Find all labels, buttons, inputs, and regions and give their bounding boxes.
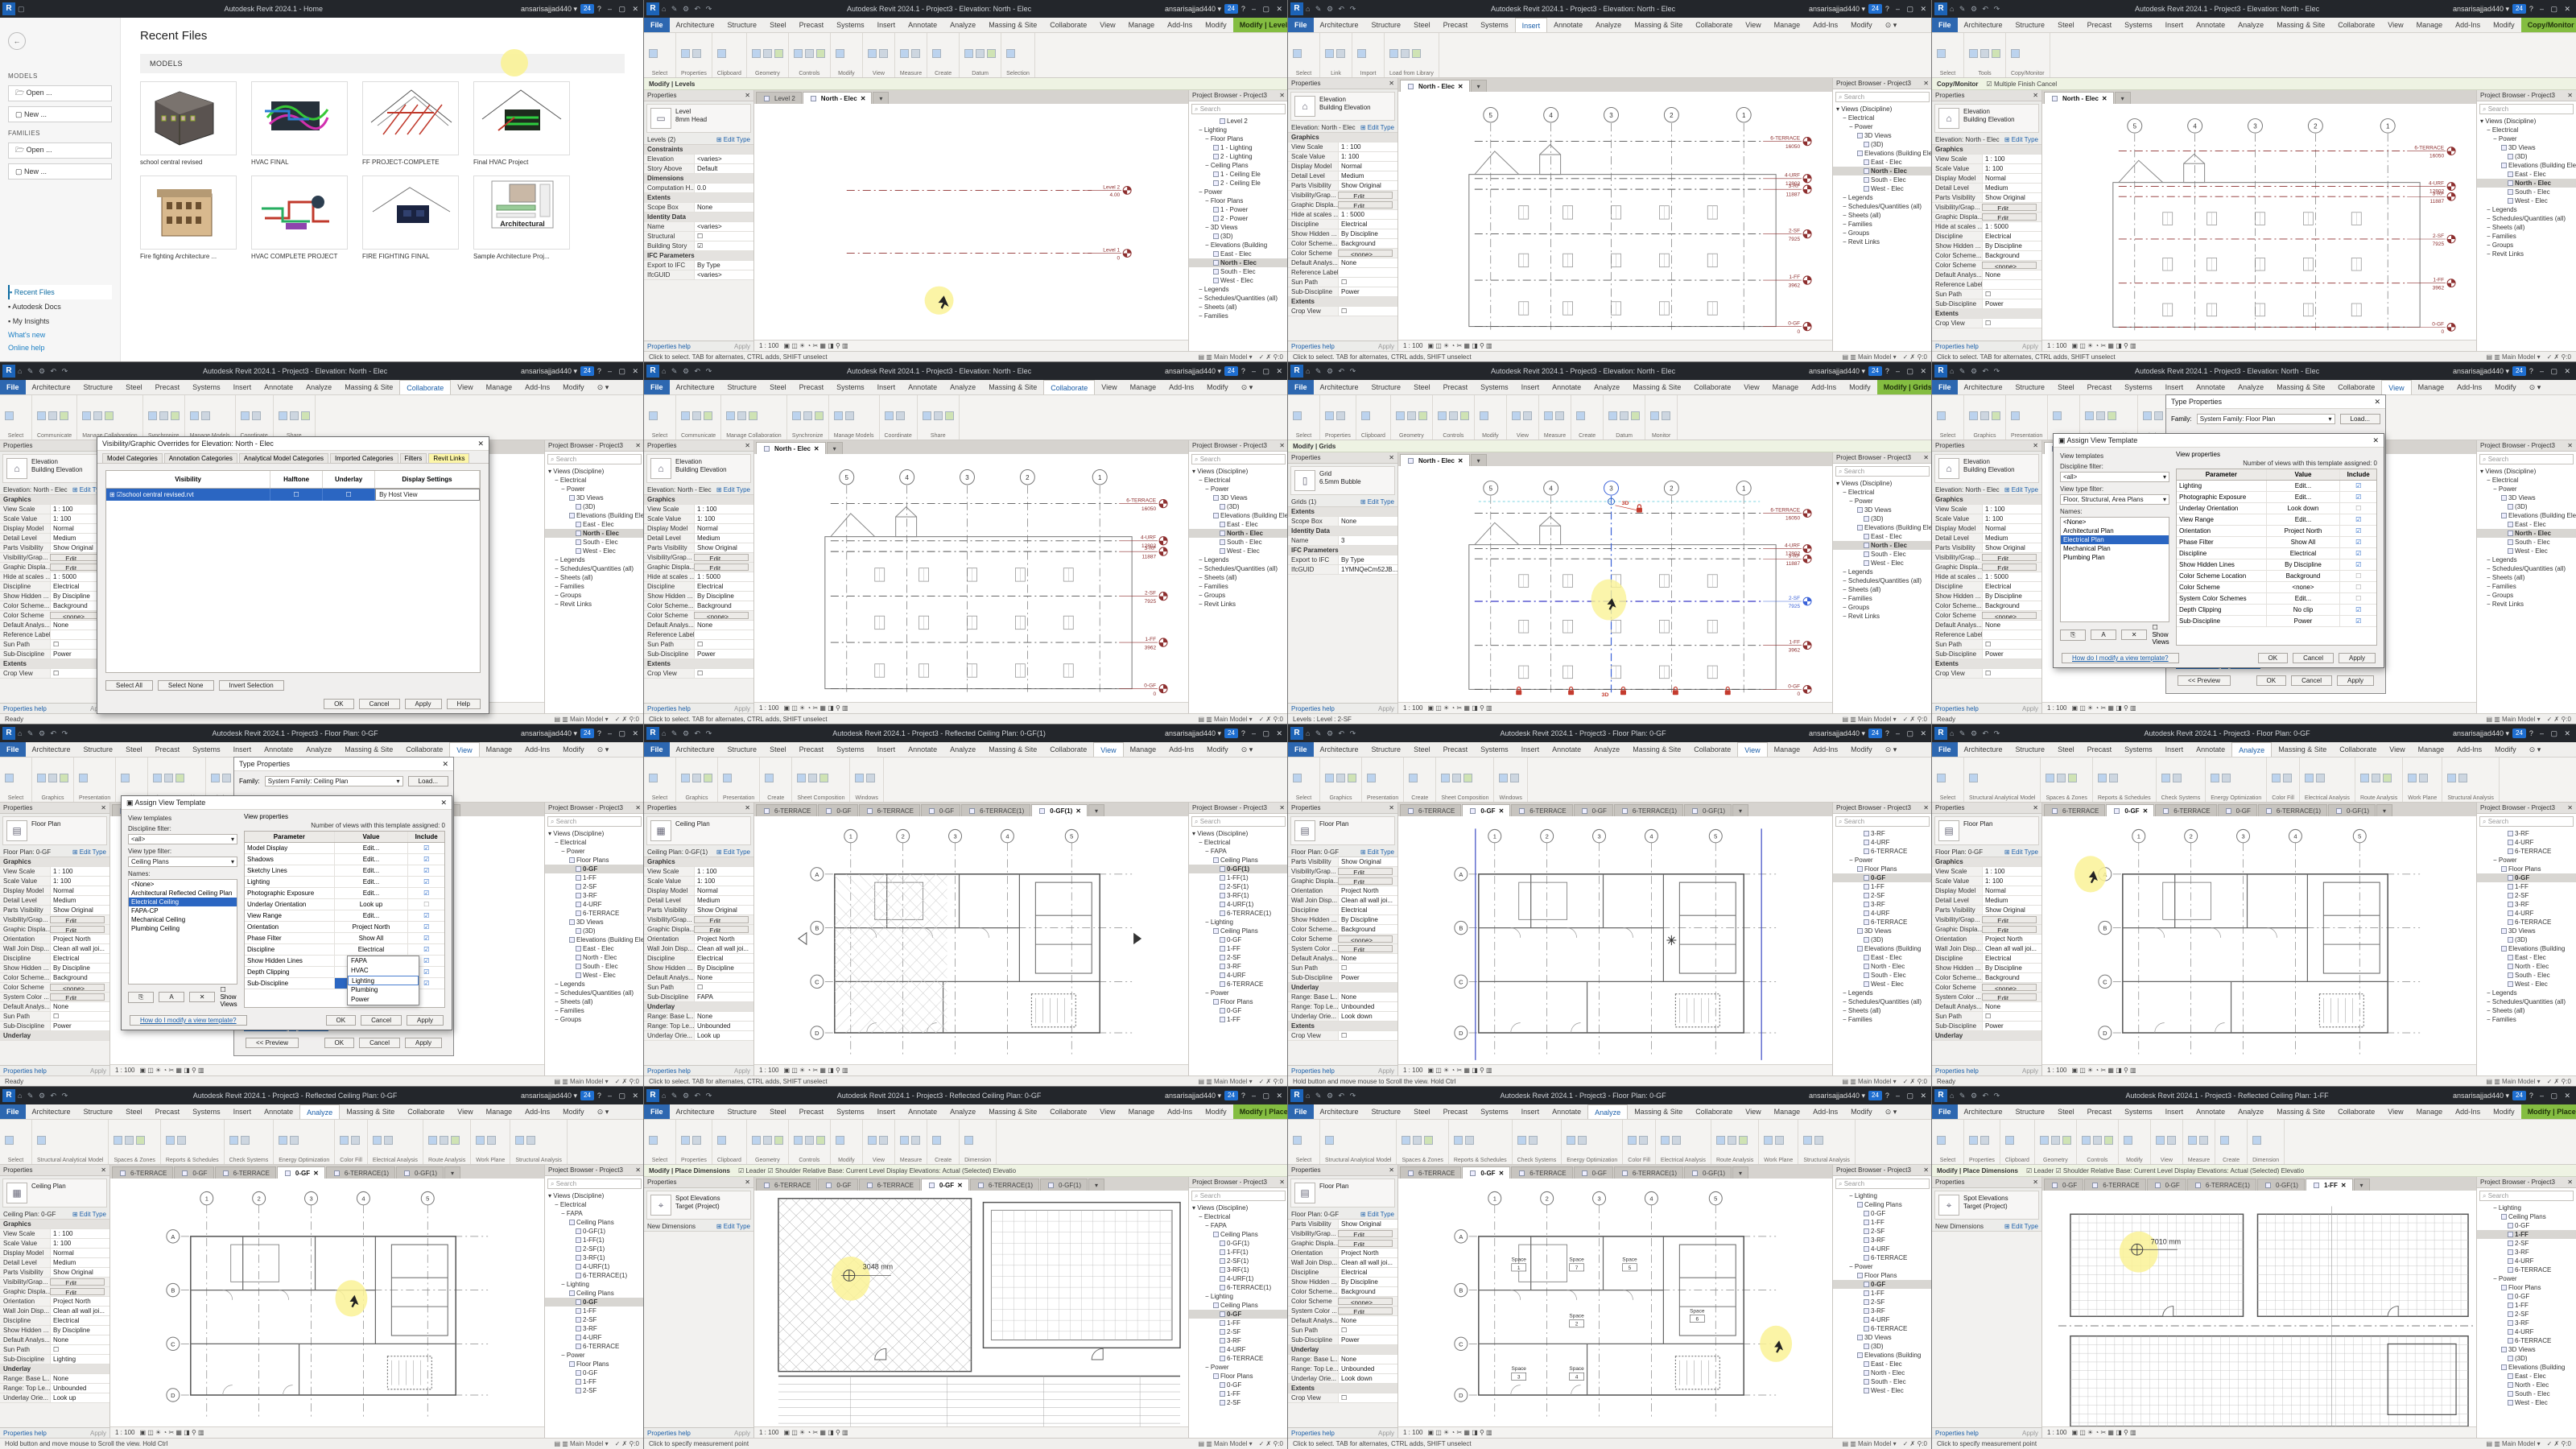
browser-search-input[interactable]: ⌕ Search [1835,1179,1930,1189]
ribbon-tab-collaborate[interactable]: Collaborate [1687,380,1737,394]
tool-icon[interactable] [1555,411,1564,420]
tool-icon[interactable] [885,411,894,420]
window-controls[interactable]: – ▢ ✕ [2540,5,2573,14]
nav-item-recent-files[interactable]: ▪ Recent Files [8,285,112,299]
document-tab[interactable]: 0-GF [818,1179,857,1191]
assign-view-template-dialog[interactable]: ▣ Assign View Template✕View templatesDis… [2053,433,2384,668]
quick-access-toolbar[interactable]: ⌂ ✎ ⚙ ↶ ↷ [1950,367,2001,376]
tree-item[interactable]: Ceiling Plans [1189,1230,1288,1239]
tool-icon[interactable] [2220,1136,2229,1145]
browser-search-input[interactable]: ⌕ Search [2479,104,2574,114]
scale-indicator[interactable]: 1 : 100 [115,1067,134,1074]
tree-item[interactable]: 3D Views [1833,506,1932,514]
ribbon-tab-insert[interactable]: Insert [1515,1104,1546,1119]
window-controls[interactable]: – ▢ ✕ [608,5,641,14]
ribbon-tab-structure[interactable]: Structure [2009,742,2052,757]
button-cancel[interactable]: Cancel [361,1015,402,1026]
ribbon-tab-modify[interactable]: Modify [1843,380,1877,394]
tree-item[interactable]: − Legends [1833,568,1932,576]
ribbon-tab-systems[interactable]: Systems [186,742,227,757]
ribbon-tab-annotate[interactable]: Annotate [902,1104,943,1119]
tree-item[interactable]: − Power [1833,856,1932,865]
button-invert-selection[interactable]: Invert Selection [219,680,284,691]
tree-item[interactable]: East - Elec [2477,170,2576,179]
drawing-area[interactable]: 12345ABCD [2042,816,2476,1064]
param-value[interactable]: <none> [1338,250,1393,257]
tree-item[interactable]: Elevations (Building [2477,1363,2576,1372]
ribbon-tab-annotate[interactable]: Annotate [902,18,943,32]
close-tab-icon[interactable]: ✕ [1075,807,1081,815]
tree-item[interactable]: 3-RF [2477,1248,2576,1257]
tree-item[interactable]: 4-URF [1833,909,1932,918]
ribbon-tab-precast[interactable]: Precast [1437,742,1475,757]
param-value[interactable]: Power [2267,616,2341,626]
ribbon-tab-structure[interactable]: Structure [77,380,120,394]
back-button[interactable]: ← [8,32,26,50]
ribbon-tab-collaborate[interactable]: Collaborate [1043,1104,1093,1119]
tool-icon[interactable] [2109,774,2118,782]
tree-item[interactable]: − Elevations (Building [1189,241,1288,250]
tree-item[interactable]: − Revit Links [1189,600,1288,609]
tree-item[interactable]: 0-GF [1189,1381,1288,1389]
ribbon-tab-analyze[interactable]: Analyze [2231,742,2272,757]
discipline-filter-select[interactable]: <all>▾ [2060,472,2169,482]
worksets-indicator[interactable]: ▤ ▥ Main Model ▾ [554,1440,608,1447]
tool-icon[interactable] [717,49,726,58]
ribbon-tab-analyze[interactable]: Analyze [943,1104,982,1119]
include-checkbox[interactable]: ☑ [408,910,444,921]
ribbon-tab-manage[interactable]: Manage [480,1104,519,1119]
ribbon-tab-file[interactable]: File [1288,380,1314,394]
document-tab[interactable]: 0-GF✕ [1462,1166,1510,1179]
models-new-button[interactable]: ▢ New ... [8,106,112,122]
tool-icon[interactable] [1293,411,1302,420]
ribbon-tab-architecture[interactable]: Architecture [26,742,77,757]
tree-item[interactable]: − Groups [545,1015,644,1024]
param-value[interactable]: <none> [1982,984,2037,991]
ribbon-tab-add-ins[interactable]: Add-Ins [2450,742,2488,757]
template-names-list[interactable]: <None>Architectural PlanElectrical PlanM… [2060,517,2169,622]
ribbon-options-icon[interactable]: ⊙ ▾ [2523,380,2548,394]
selection-filter-icons[interactable]: ✓ ✗ ⚲:0 [1903,1078,1927,1085]
tool-icon[interactable] [2305,774,2314,782]
document-tab[interactable]: 0-GF [2044,1179,2083,1191]
revit-logo-icon[interactable]: R [646,365,659,378]
tool-icon[interactable] [2005,1136,2014,1145]
param-value[interactable]: Project North [2267,526,2341,536]
dialog-tab[interactable]: Filters [400,453,427,463]
tree-item[interactable]: 2-SF [1833,891,1932,900]
tree-item[interactable]: Elevations (Building Ele [2477,161,2576,170]
tree-item[interactable]: Floor Plans [1833,1271,1932,1280]
apply-button[interactable]: Apply [734,705,750,712]
document-tab[interactable]: 6-TERRACE [859,1179,920,1191]
param-value[interactable]: 1 : 100 [1982,155,2041,163]
tree-item[interactable]: 0-GF [1833,1280,1932,1289]
ribbon-tab-add-ins[interactable]: Add-Ins [2449,1104,2487,1119]
tree-item[interactable]: 2-SF(1) [1189,882,1288,891]
tool-icon[interactable] [845,411,854,420]
scale-indicator[interactable]: 1 : 100 [1403,1429,1422,1436]
account-menu[interactable]: ansarisajjad440 ▾ [521,367,577,376]
window-controls[interactable]: – ▢ ✕ [1252,5,1285,14]
tree-item[interactable]: − Legends [2477,989,2576,997]
tree-item[interactable]: 6-TERRACE [1189,980,1288,989]
ribbon-tab-manage[interactable]: Manage [2412,380,2451,394]
tree-item[interactable]: − Power [545,847,644,856]
document-tab[interactable]: 6-TERRACE [1511,804,1572,816]
tool-icon[interactable] [803,411,812,420]
tree-item[interactable]: 3-RF [2477,829,2576,838]
ribbon-tab-insert[interactable]: Insert [227,742,258,757]
tree-item[interactable]: 6-TERRACE [2477,918,2576,927]
tree-item[interactable]: − Lighting [2477,1203,2576,1212]
tree-item[interactable]: East - Elec [1833,953,1932,962]
button-ok[interactable]: OK [324,699,354,709]
link-online-help[interactable]: Online help [8,341,112,354]
ribbon-tab-add-ins[interactable]: Add-Ins [1805,380,1843,394]
ribbon-tab-manage[interactable]: Manage [1124,380,1163,394]
tree-item[interactable]: North - Elec [545,953,644,962]
tool-icon[interactable] [175,774,184,782]
ribbon-tab-annotate[interactable]: Annotate [2190,742,2231,757]
tool-icon[interactable] [834,411,843,420]
view-control-icons[interactable]: ▣ ◫ ☀ ◔ ✂ ▦ ◨ ⚲ ▥ [783,704,848,712]
ribbon-tab-modify[interactable]: Modify [556,742,591,757]
apply-button[interactable]: Apply [2022,343,2038,350]
tool-icon[interactable] [1412,49,1421,58]
tree-item[interactable]: West - Elec [1833,980,1932,989]
document-tab[interactable]: North - Elec✕ [756,442,826,454]
tree-item[interactable]: ▾ Views (Discipline) [2477,467,2576,476]
param-row[interactable]: Photographic ExposureEdit...☑ [245,888,444,899]
tool-icon[interactable] [681,411,690,420]
worksets-indicator[interactable]: ▤ ▥ Main Model ▾ [2486,1078,2540,1085]
ribbon-tab-architecture[interactable]: Architecture [670,380,721,394]
tree-item[interactable]: 3-RF [2477,900,2576,909]
ribbon-tab-file[interactable]: File [0,1104,26,1119]
tool-icon[interactable] [2154,411,2163,420]
tree-item[interactable]: 0-GF(1) [545,1227,644,1236]
tool-icon[interactable] [1357,49,1366,58]
tree-item[interactable]: − Families [2477,1015,2576,1024]
underlay-checkbox[interactable]: ☐ [323,489,375,501]
ribbon-tab-annotate[interactable]: Annotate [902,380,943,394]
document-tab[interactable]: 6-TERRACE [1511,1166,1572,1179]
tree-item[interactable]: South - Elec [545,962,644,971]
tree-item[interactable]: 3-RF(1) [1189,891,1288,900]
param-value[interactable]: <varies> [694,155,753,163]
modify-template-help-link[interactable]: How do I modify a view template? [130,1015,247,1026]
drawing-area[interactable]: 543216-TERRACE160504-URF128023-RF118872-… [754,454,1188,702]
ribbon-tab-view[interactable]: View [451,380,479,394]
quick-access-toolbar[interactable]: ⌂ ✎ ⚙ ↶ ↷ [18,729,69,738]
view-control-icons[interactable]: ▣ ◫ ☀ ◔ ✂ ▦ ◨ ⚲ ▥ [1427,704,1492,712]
ribbon-tab-modify[interactable]: Modify [556,380,591,394]
ribbon-tab-analyze[interactable]: Analyze [299,742,338,757]
ribbon-tab-precast[interactable]: Precast [149,1104,187,1119]
ribbon-tab-systems[interactable]: Systems [2118,742,2159,757]
tree-item[interactable]: North - Elec [1833,962,1932,971]
param-value[interactable]: Edit... [694,916,749,923]
tool-icon[interactable] [2093,1136,2102,1145]
tool-icon[interactable] [945,411,954,420]
tree-item[interactable]: − Power [1189,188,1288,196]
tree-item[interactable]: − Floor Plans [1189,134,1288,143]
window-controls[interactable]: – ▢ ✕ [1896,5,1929,14]
ribbon-tab-analyze[interactable]: Analyze [1587,742,1626,757]
param-value[interactable]: Edit... [50,1288,105,1295]
tool-icon[interactable] [37,411,46,420]
tool-icon[interactable] [2408,774,2417,782]
param-value[interactable]: Edit... [50,916,105,923]
tool-icon[interactable] [932,49,941,58]
tree-item[interactable]: − Sheets (all) [545,997,644,1006]
tool-icon[interactable] [166,1136,175,1145]
ribbon-tab-annotate[interactable]: Annotate [2190,18,2231,32]
document-tab[interactable]: 0-GF(1) [2328,804,2376,816]
tree-item[interactable]: 2-SF [2477,1310,2576,1319]
tree-item[interactable]: North - Elec [1833,541,1932,550]
tree-item[interactable]: − Schedules/Quantities (all) [1833,576,1932,585]
tool-icon[interactable] [1969,411,1978,420]
load-button[interactable]: Load... [2340,414,2380,424]
close-icon[interactable]: ✕ [1923,804,1929,811]
param-value[interactable]: Edit... [2267,481,2341,491]
drawing-area[interactable]: 12345ABCD [110,1179,544,1426]
tool-icon[interactable] [1739,1136,1748,1145]
document-tab[interactable]: 0-GF(1) [1684,804,1732,816]
param-value[interactable]: Edit... [50,926,105,933]
tree-item[interactable]: − Revit Links [1833,237,1932,246]
tree-item[interactable]: − Groups [545,591,644,600]
tree-item[interactable]: East - Elec [1833,1360,1932,1368]
param-value[interactable]: Show All [2267,537,2341,547]
ribbon-tab-add-ins[interactable]: Add-Ins [1162,380,1200,394]
document-tab[interactable]: 0-GF(1) [1040,1179,1088,1191]
ribbon-options-icon[interactable]: ⊙ ▾ [2523,742,2548,757]
tree-item[interactable]: 1-FF [1189,1319,1288,1327]
scale-indicator[interactable]: 1 : 100 [759,1067,778,1074]
selection-filter-icons[interactable]: ✓ ✗ ⚲:0 [1259,716,1283,723]
revit-logo-icon[interactable]: R [1934,1089,1947,1102]
type-selector[interactable]: ⌂ElevationBuilding Elevation [1934,454,2039,483]
ribbon-options-icon[interactable]: ⊙ ▾ [1879,1104,1904,1119]
tree-item[interactable]: Floor Plans [2477,865,2576,873]
tool-icon[interactable] [1523,411,1532,420]
tool-icon[interactable] [222,774,231,782]
param-row[interactable]: Model DisplayEdit...☑ [245,843,444,854]
revit-logo-icon[interactable]: R [646,2,659,15]
ribbon-tab-annotate[interactable]: Annotate [1547,18,1589,32]
include-checkbox[interactable]: ☑ [408,944,444,955]
tree-item[interactable]: − Power [545,485,644,493]
ribbon-tab-collaborate[interactable]: Collaborate [2331,380,2381,394]
tool-icon[interactable] [125,1136,134,1145]
tree-item[interactable]: − Sheets (all) [2477,1006,2576,1015]
tree-item[interactable]: South - Elec [1833,1377,1932,1386]
param-value[interactable]: Background [2267,571,2341,581]
ribbon-tab-massing-site[interactable]: Massing & Site [2270,380,2331,394]
ribbon-tab-view[interactable]: View [1737,742,1767,757]
tree-item[interactable]: Elevations (Building [2477,944,2576,953]
tool-icon[interactable] [681,774,690,782]
tree-item[interactable]: 3-RF(1) [545,1253,644,1262]
ribbon-tab-structure[interactable]: Structure [721,18,764,32]
window-controls[interactable]: – ▢ ✕ [1896,729,1929,738]
tool-icon[interactable] [1361,411,1370,420]
document-tab[interactable]: 6-TERRACE(1) [961,804,1030,816]
selection-filter-icons[interactable]: ✓ ✗ ⚲:0 [1903,1440,1927,1447]
halftone-checkbox[interactable]: ☐ [270,489,323,501]
quick-access-toolbar[interactable]: ⌂ ✎ ⚙ ↶ ↷ [1306,5,1357,14]
tree-item[interactable]: East - Elec [2477,1372,2576,1381]
ribbon-tab-collaborate[interactable]: Collaborate [2331,18,2381,32]
tool-icon[interactable] [797,774,806,782]
properties-help-link[interactable]: Properties help [1935,1430,1979,1437]
tool-icon[interactable] [1662,411,1670,420]
ribbon-tab-file[interactable]: File [1288,18,1314,32]
document-tab[interactable]: North - Elec✕ [1400,454,1470,466]
tree-item[interactable]: Ceiling Plans [1833,1200,1932,1209]
help-icon[interactable]: ? [1885,5,1889,13]
button-preview[interactable]: << Preview [2178,675,2231,686]
tool-icon[interactable] [1672,1136,1681,1145]
ribbon-tab-analyze[interactable]: Analyze [1587,380,1626,394]
param-value[interactable]: <none> [2267,582,2341,592]
apply-button[interactable]: Apply [90,1430,106,1437]
tree-item[interactable]: 1-FF(1) [1189,1248,1288,1257]
tree-item[interactable]: 3D Views [1833,131,1932,140]
tree-item[interactable]: ▾ Views (Discipline) [1189,829,1288,838]
ribbon-tab-view[interactable]: View [1093,742,1123,757]
browser-search-input[interactable]: ⌕ Search [1835,92,1930,102]
tool-icon[interactable] [2199,1136,2208,1145]
ribbon-tab-file[interactable]: File [1288,742,1314,757]
document-tab[interactable]: 0-GF✕ [1462,804,1510,816]
help-icon[interactable]: ? [2529,729,2533,737]
template-name-item[interactable]: Plumbing Plan [2061,553,2169,562]
include-checkbox[interactable]: ☑ [408,854,444,865]
revit-logo-icon[interactable]: R [2,2,15,15]
tree-item[interactable]: (3D) [1833,935,1932,944]
param-value[interactable]: Edit... [1338,1307,1393,1315]
nav-item-autodesk-docs[interactable]: ▪ Autodesk Docs [8,299,112,314]
param-value[interactable]: Edit... [1338,1240,1393,1247]
close-tab-icon[interactable]: ✕ [861,95,866,102]
tab-list-icon[interactable]: ▾ [827,442,843,454]
view-control-icons[interactable]: ▣ ◫ ☀ ◔ ✂ ▦ ◨ ⚲ ▥ [2071,1429,2136,1436]
param-row[interactable]: View RangeEdit...☑ [245,910,444,922]
tree-item[interactable]: − Schedules/Quantities (all) [1189,294,1288,303]
ribbon-tab-file[interactable]: File [644,18,670,32]
tree-item[interactable]: − Sheets (all) [1833,211,1932,220]
ribbon-tab-steel[interactable]: Steel [763,742,793,757]
tool-icon[interactable] [692,411,701,420]
tree-item[interactable]: 4-URF [1833,838,1932,847]
tree-item[interactable]: − Revit Links [2477,600,2576,609]
button-cancel[interactable]: Cancel [359,1038,400,1048]
quick-access-toolbar[interactable]: ⌂ ✎ ⚙ ↶ ↷ [662,729,713,738]
tool-icon[interactable] [2211,774,2219,782]
param-row[interactable]: Color Scheme<none>☐ [2177,582,2376,593]
param-row[interactable]: Sketchy LinesEdit...☑ [245,865,444,877]
ribbon-tab-modify[interactable]: Modify [2487,18,2521,32]
options-bar-controls[interactable]: ☑ Leader ☑ Shoulder Relative Base: Curre… [2026,1167,2304,1174]
tool-icon[interactable] [808,774,817,782]
account-menu[interactable]: ansarisajjad440 ▾ [521,1092,577,1100]
tree-item[interactable]: 6-TERRACE [545,909,644,918]
browser-search-input[interactable]: ⌕ Search [1191,104,1286,114]
document-tab[interactable]: 6-TERRACE [859,804,920,816]
tree-item[interactable]: − Power [1189,1363,1288,1372]
quick-access-toolbar[interactable]: ⌂ ✎ ⚙ ↶ ↷ [1950,1092,2001,1100]
help-icon[interactable]: ? [1241,367,1245,375]
param-value[interactable]: 1 : 100 [50,1229,109,1238]
ribbon-tab-modify[interactable]: Modify [1199,1104,1233,1119]
close-tab-icon[interactable]: ✕ [814,445,819,452]
ribbon-tab-collaborate[interactable]: Collaborate [1689,1104,1739,1119]
ribbon-tab-analyze[interactable]: Analyze [1589,18,1628,32]
help-icon[interactable]: ? [1885,1092,1889,1100]
tool-icon[interactable] [2011,49,2020,58]
ribbon-tab-view[interactable]: View [1737,380,1765,394]
tree-item[interactable]: North - Elec [545,529,644,538]
tree-item[interactable]: − Power [1833,1262,1932,1271]
ribbon-tab-structure[interactable]: Structure [1365,18,1408,32]
link-what-s-new[interactable]: What's new [8,328,112,341]
ribbon-tab-manage[interactable]: Manage [1768,1104,1807,1119]
tree-item[interactable]: − Sheets (all) [1189,303,1288,312]
tree-item[interactable]: Ceiling Plans [1189,856,1288,865]
ribbon-tab-annotate[interactable]: Annotate [1546,1104,1587,1119]
ribbon-options-icon[interactable]: ⊙ ▾ [591,380,616,394]
tree-item[interactable]: (3D) [2477,502,2576,511]
tool-icon[interactable] [301,411,310,420]
tree-item[interactable]: 6-TERRACE(1) [1189,1283,1288,1292]
ribbon-tab-view[interactable]: View [2383,742,2411,757]
tree-item[interactable]: − Legends [1833,193,1932,202]
ribbon-tab-add-ins[interactable]: Add-Ins [1161,1104,1199,1119]
include-checkbox[interactable]: ☐ [408,899,444,910]
tree-item[interactable]: (3D) [1833,1342,1932,1351]
ribbon-tab-modify[interactable]: Modify [1844,1104,1879,1119]
tool-icon[interactable] [976,49,985,58]
selection-filter-icons[interactable]: ✓ ✗ ⚲:0 [2547,1440,2571,1447]
tool-icon[interactable] [440,1136,448,1145]
ribbon-tab-steel[interactable]: Steel [1407,380,1437,394]
browser-search-input[interactable]: ⌕ Search [547,816,642,827]
account-menu[interactable]: ansarisajjad440 ▾ [1809,367,1865,376]
tree-item[interactable]: − Groups [1833,603,1932,612]
ribbon-tab-steel[interactable]: Steel [1407,742,1437,757]
tool-icon[interactable] [1367,774,1376,782]
tree-item[interactable]: − Electrical [1189,1212,1288,1221]
close-icon[interactable]: ✕ [477,440,484,448]
tree-item[interactable]: 3-RF [1833,1307,1932,1315]
ribbon-tab-precast[interactable]: Precast [2081,18,2119,32]
tree-item[interactable]: ▾ Views (Discipline) [2477,117,2576,126]
ribbon-tab-collaborate[interactable]: Collaborate [1043,380,1095,394]
show-views-checkbox[interactable]: ☐ Show Views [2152,624,2169,646]
help-icon[interactable]: ? [597,367,601,375]
param-value[interactable]: Edit... [50,1278,105,1286]
ribbon-tab-systems[interactable]: Systems [1474,18,1515,32]
close-icon[interactable]: ✕ [1923,454,1929,461]
ribbon-tab-manage[interactable]: Manage [1124,742,1163,757]
tool-icon[interactable] [384,1136,393,1145]
tree-item[interactable]: 4-URF [2477,909,2576,918]
